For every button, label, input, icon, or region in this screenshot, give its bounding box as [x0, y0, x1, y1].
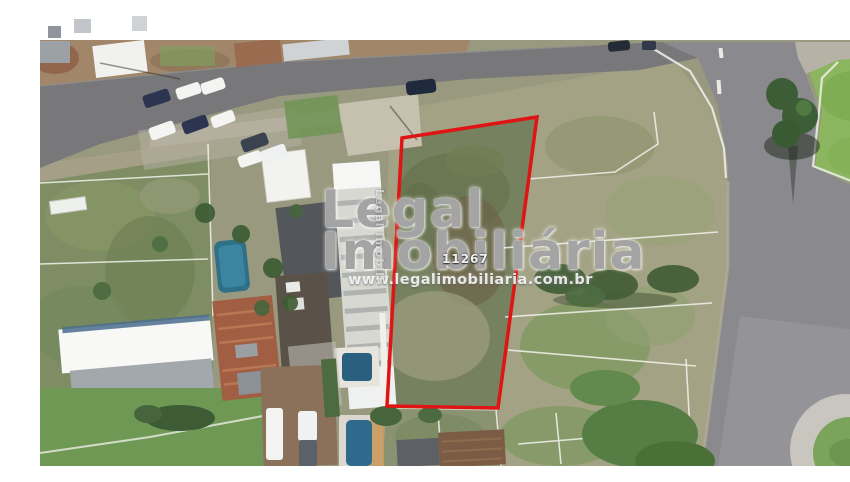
grass-patch — [545, 116, 655, 176]
white-band — [40, 16, 850, 40]
roof-fragment — [132, 16, 147, 31]
tree — [289, 204, 303, 218]
hedge — [565, 285, 605, 307]
roof-fragment — [40, 41, 70, 63]
gray-roof-house — [396, 438, 439, 466]
palm-tree — [282, 295, 298, 311]
tree — [254, 300, 270, 316]
bush — [134, 405, 162, 423]
roof-fragment — [234, 39, 282, 68]
parked-car — [642, 41, 656, 50]
roof-fragment — [74, 19, 91, 33]
bush — [152, 236, 168, 252]
satellite-photo: Legal Imobiliária www.legalimobiliaria.c… — [40, 16, 850, 466]
parcel-vegetation — [395, 183, 445, 259]
swimming-pool — [346, 420, 372, 466]
aerial-scene — [40, 16, 850, 466]
palm-tree — [263, 258, 283, 278]
bush — [93, 282, 111, 300]
roof-fragment — [92, 40, 148, 78]
bush — [418, 407, 442, 423]
hedge — [647, 265, 699, 293]
parked-van — [266, 408, 283, 460]
parcel-dry-grass — [380, 291, 490, 381]
brown-roof-house — [438, 429, 506, 466]
parked-van — [298, 411, 317, 441]
pool-water — [218, 244, 246, 288]
roof-fragment — [48, 26, 61, 38]
parcel-vegetation — [445, 145, 505, 177]
tree — [772, 120, 800, 148]
dirt-patch — [140, 178, 200, 214]
palm-tree — [232, 225, 250, 243]
vegetation-patch — [570, 370, 640, 406]
tree-highlight — [796, 100, 812, 116]
skylight — [235, 343, 258, 358]
swimming-pool — [342, 353, 372, 381]
roof-section — [332, 161, 381, 190]
top-band — [40, 16, 850, 40]
palm-tree — [195, 203, 215, 223]
bush — [370, 406, 402, 426]
ac-unit — [286, 281, 301, 292]
concrete-pad — [338, 94, 422, 156]
truck-trailer — [299, 440, 317, 466]
verge-grass — [284, 95, 342, 139]
grass-patch — [160, 46, 215, 66]
